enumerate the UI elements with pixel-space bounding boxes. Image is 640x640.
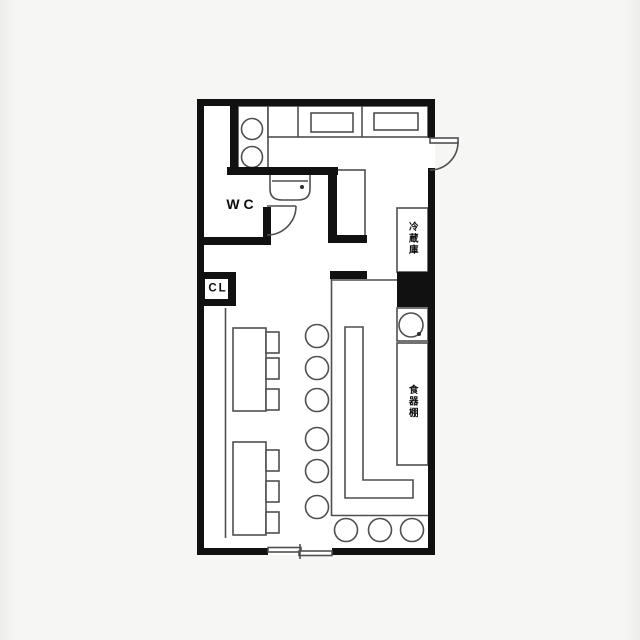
kitchen-wall bbox=[328, 235, 367, 243]
chair bbox=[266, 481, 279, 502]
closet-label: CL bbox=[206, 283, 227, 295]
interior-wall bbox=[227, 167, 338, 175]
stool bbox=[369, 519, 392, 542]
outer-wall-right bbox=[428, 99, 435, 138]
wc-wall bbox=[263, 207, 271, 245]
stool bbox=[335, 519, 358, 542]
table bbox=[233, 328, 266, 411]
burner-icon bbox=[242, 147, 263, 168]
outer-wall-right bbox=[428, 168, 435, 555]
floorplan-canvas: WC CL 冷蔵庫 食器棚 bbox=[0, 0, 640, 640]
kitchen-wall bbox=[328, 167, 337, 243]
stove-unit bbox=[238, 106, 268, 172]
stool bbox=[306, 496, 329, 519]
outer-wall-left bbox=[197, 99, 204, 555]
chair bbox=[266, 512, 279, 533]
burner-icon bbox=[242, 119, 263, 140]
floorplan-drawing bbox=[0, 0, 640, 640]
kitchen-sink bbox=[397, 308, 428, 341]
chair bbox=[266, 358, 279, 379]
stool bbox=[306, 460, 329, 483]
stool bbox=[306, 357, 329, 380]
counter-equipment bbox=[311, 113, 353, 132]
cupboard-label: 食器棚 bbox=[407, 385, 417, 420]
stool bbox=[306, 428, 329, 451]
kitchen-partition-panel bbox=[335, 170, 365, 237]
stool bbox=[306, 325, 329, 348]
table bbox=[233, 442, 266, 535]
counter-equipment bbox=[374, 113, 418, 130]
kitchen-top-counter bbox=[268, 106, 428, 137]
chair bbox=[266, 332, 279, 353]
counter-wall-stub bbox=[330, 271, 367, 279]
stool bbox=[401, 519, 424, 542]
hand-wash-basin bbox=[270, 172, 310, 200]
wc-room-label: WC bbox=[222, 197, 257, 211]
interior-wall bbox=[230, 106, 238, 175]
outer-wall-bottom bbox=[197, 548, 268, 555]
refrigerator-label: 冷蔵庫 bbox=[407, 222, 417, 257]
stool bbox=[306, 389, 329, 412]
chair bbox=[266, 450, 279, 471]
chair bbox=[266, 389, 279, 410]
wc-wall bbox=[197, 237, 265, 245]
outer-wall-top bbox=[197, 99, 435, 106]
outer-wall-bottom bbox=[332, 548, 435, 555]
solid-block bbox=[397, 272, 428, 307]
